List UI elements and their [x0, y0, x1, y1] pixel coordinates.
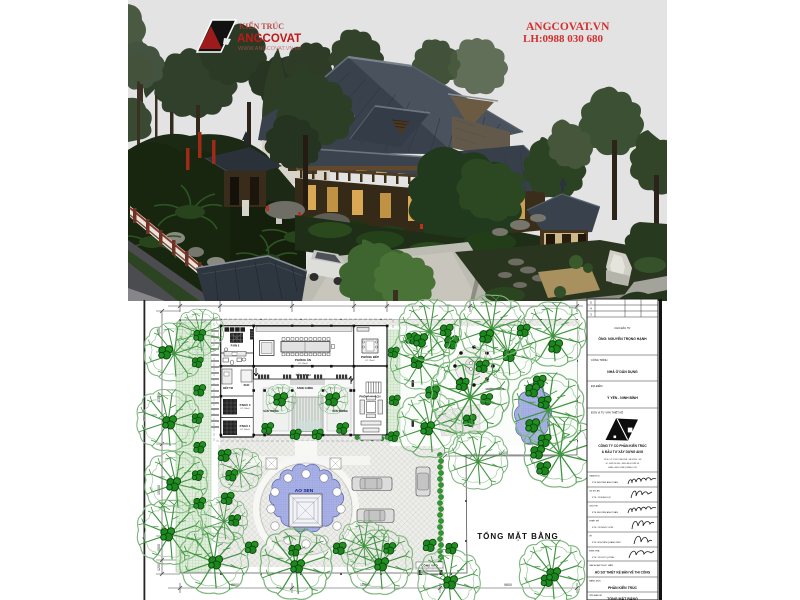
svg-text:KTS. NGUYỄN QUANG PHÚ: KTS. NGUYỄN QUANG PHÚ — [592, 541, 621, 544]
svg-text:Ý YÊN - NINH BÌNH: Ý YÊN - NINH BÌNH — [607, 395, 638, 400]
svg-text:GIÁM ĐỐC: GIÁM ĐỐC — [589, 475, 600, 478]
svg-text:ÔNG: NGUYỄN TRỌNG HẠNH: ÔNG: NGUYỄN TRỌNG HẠNH — [598, 336, 647, 341]
svg-text:TÊN BẢN VẼ: TÊN BẢN VẼ — [589, 594, 603, 597]
svg-text:DT: 55m2: DT: 55m2 — [298, 363, 308, 365]
svg-text:THIẾT KẾ: THIẾT KẾ — [589, 520, 599, 523]
svg-text:KTS.NGUYỄN ANH TUẤN: KTS.NGUYỄN ANH TUẤN — [592, 511, 618, 514]
svg-text:KTS.NGUYỄN ANH TUẤN: KTS.NGUYỄN ANH TUẤN — [592, 481, 618, 484]
svg-text:NHÀ Ở DÂN DỤNG: NHÀ Ở DÂN DỤNG — [607, 369, 638, 374]
svg-text:PHÒNG BẾP: PHÒNG BẾP — [361, 354, 379, 359]
svg-text:HẠNG MỤC: HẠNG MỤC — [589, 580, 601, 583]
svg-text:HỒ SƠ THIẾT KẾ BẢN VẼ THI CÔNG: HỒ SƠ THIẾT KẾ BẢN VẼ THI CÔNG — [595, 570, 651, 575]
svg-text:DT: 25m2: DT: 25m2 — [365, 360, 375, 362]
svg-text:DT: 18m2: DT: 18m2 — [240, 408, 250, 410]
svg-text:KIẾN TRÚC: KIẾN TRÚC — [239, 21, 284, 31]
svg-text:ANGCOVAT: ANGCOVAT — [237, 33, 301, 45]
svg-text:CHỦ TRÌ: CHỦ TRÌ — [589, 505, 598, 508]
svg-text:KTS. VŨ ĐÌNH LỢI: KTS. VŨ ĐÌNH LỢI — [592, 496, 611, 499]
svg-text:9800: 9800 — [504, 583, 512, 587]
svg-text:ĐT: 0988 030 680 - WEB: ANGCOV: ĐT: 0988 030 680 - WEB: ANGCOVAT.VN — [606, 462, 640, 465]
svg-text:P.NGỦ 3: P.NGỦ 3 — [240, 402, 251, 407]
svg-text:VPGD: LÔ 12 KĐT VĂN KHÊ - HÀ Đ: VPGD: LÔ 12 KĐT VĂN KHÊ - HÀ ĐÔNG - HN — [604, 458, 642, 461]
svg-text:DT: 18m2: DT: 18m2 — [240, 429, 250, 431]
svg-text:& ĐẦU TƯ XÂY DỰNG ANG: & ĐẦU TƯ XÂY DỰNG ANG — [602, 449, 644, 454]
svg-text:PHẦN KIẾN TRÚC: PHẦN KIẾN TRÚC — [608, 585, 638, 590]
svg-text:CN ĐỒ ÁN: CN ĐỒ ÁN — [589, 490, 600, 493]
svg-text:GIAI ĐOẠN THỰC HIỆN: GIAI ĐOẠN THỰC HIỆN — [589, 564, 613, 567]
svg-text:KIỂM TRA: KIỂM TRA — [589, 550, 600, 553]
svg-text:LH:0988 030 680: LH:0988 030 680 — [523, 33, 604, 45]
svg-text:KHO: KHO — [244, 383, 250, 387]
svg-text:P.NGỦ 1: P.NGỦ 1 — [240, 423, 251, 428]
svg-text:KTS. VŨ NGỌC SƠN: KTS. VŨ NGỌC SƠN — [592, 526, 614, 529]
svg-text:CÔNG TY CỔ PHẦN KIẾN TRÚC: CÔNG TY CỔ PHẦN KIẾN TRÚC — [598, 443, 647, 448]
svg-text:ANGCOVAT.VN: ANGCOVAT.VN — [526, 21, 610, 33]
svg-text:TỔNG MẶT BẰNG: TỔNG MẶT BẰNG — [607, 596, 638, 600]
svg-text:AO SEN: AO SEN — [295, 488, 314, 494]
svg-text:EMAIL: ANGCOVAT@GMAIL.COM: EMAIL: ANGCOVAT@GMAIL.COM — [608, 466, 637, 469]
svg-text:1200: 1200 — [157, 563, 161, 571]
svg-text:P.ĂN 2: P.ĂN 2 — [231, 343, 240, 348]
svg-text:WWW.ANGCOVAT.VN ////: WWW.ANGCOVAT.VN //// — [238, 46, 302, 52]
svg-text:KTS. VŨ DUY QUỲNH: KTS. VŨ DUY QUỲNH — [592, 556, 615, 559]
svg-text:PHÒNG ĂN: PHÒNG ĂN — [295, 357, 311, 362]
